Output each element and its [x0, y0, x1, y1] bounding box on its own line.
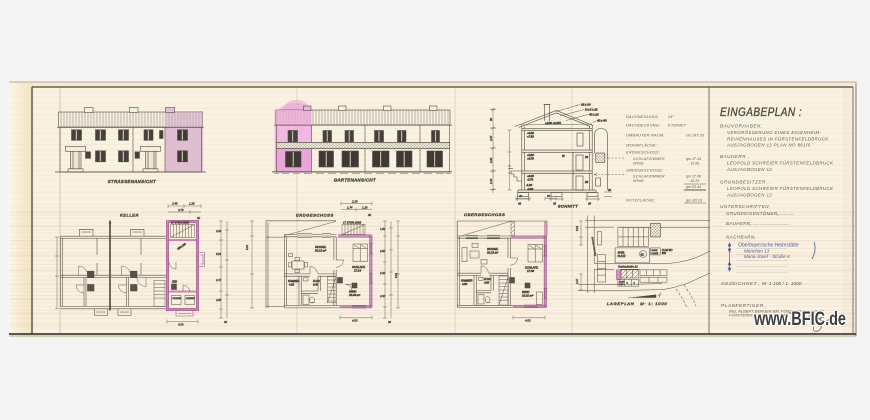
svg-text:GARTENANSICHT: GARTENANSICHT	[334, 178, 376, 183]
svg-text:B2: B2	[641, 253, 645, 257]
svg-text:FLUR: FLUR	[313, 279, 320, 283]
svg-text:LAGEPLAN M· 1: 1000: LAGEPLAN M· 1: 1000	[607, 301, 667, 306]
svg-text:qm 17.14: qm 17.14	[686, 157, 701, 161]
svg-text:..............................: ....................................	[748, 221, 790, 226]
svg-text:36: 36	[518, 202, 521, 206]
svg-text:40 x 40: 40 x 40	[597, 119, 607, 123]
svg-text:SCHLAFZIMMER: SCHLAFZIMMER	[633, 175, 665, 179]
svg-text:KAMMER: KAMMER	[288, 279, 300, 283]
svg-text:4.00: 4.00	[525, 319, 531, 323]
svg-text:16.31 m²: 16.31 m²	[522, 294, 534, 298]
svg-text:GRUNDBESITZER ‚: GRUNDBESITZER ‚	[720, 180, 769, 185]
svg-text:40 x 12: 40 x 12	[589, 113, 599, 117]
svg-text:VERGRÖSSERUNG EINES EIGENHEIM-: VERGRÖSSERUNG EINES EIGENHEIM-	[727, 130, 822, 135]
svg-text:2.20: 2.20	[379, 271, 386, 275]
svg-text:+5.20: +5.20	[527, 153, 534, 157]
svg-text:Gartenstraße 12: Gartenstraße 12	[618, 265, 638, 269]
svg-text:1.26: 1.26	[362, 206, 368, 210]
svg-text:UNTERSCHRIFTEN‚: UNTERSCHRIFTEN‚	[720, 204, 771, 209]
svg-text:DACHNEIGUNG:: DACHNEIGUNG:	[626, 115, 659, 119]
svg-text:+7.18: +7.18	[527, 135, 534, 139]
svg-text:4.18: 4.18	[289, 283, 295, 287]
svg-text:ÖLTANK: ÖLTANK	[186, 297, 195, 300]
svg-text:861: 861	[662, 252, 667, 255]
svg-text:KELLER: KELLER	[120, 213, 139, 218]
svg-text:qm 17.08: qm 17.08	[686, 175, 701, 179]
svg-text:NUTZFLÄCHE:: NUTZFLÄCHE:	[626, 199, 655, 203]
svg-text:6.40: 6.40	[313, 283, 319, 287]
svg-text:ERDGESCHOSS:: ERDGESCHOSS:	[626, 151, 660, 155]
svg-text:..............................: ........................................…	[736, 269, 787, 274]
svg-text:8.01: 8.01	[575, 225, 579, 231]
svg-text:AUSJAGBOGEN 12: AUSJAGBOGEN 12	[726, 167, 772, 172]
svg-text:SCHLAFZIMMER: SCHLAFZIMMER	[633, 157, 665, 161]
svg-text:cm 247.33: cm 247.33	[686, 134, 705, 138]
svg-text:LEOPOLD SCHREIER FÜRSTENFELDB: LEOPOLD SCHREIER FÜRSTENFELDBRUCK	[727, 161, 834, 166]
svg-text:8.01: 8.01	[394, 272, 398, 278]
svg-text:4.00: 4.00	[352, 319, 358, 323]
svg-text:17.14: 17.14	[354, 269, 361, 273]
svg-text:2.60: 2.60	[379, 249, 386, 253]
svg-text:www.BFIC.de: www.BFIC.de	[753, 309, 846, 330]
svg-text:+0.00: +0.00	[527, 174, 534, 178]
svg-text:1.50: 1.50	[380, 227, 386, 231]
svg-text:4.00: 4.00	[178, 323, 184, 327]
svg-text:· 16.31: · 16.31	[688, 179, 699, 183]
svg-text:AUSJAGBOGEN 12: AUSJAGBOGEN 12	[726, 192, 772, 197]
svg-text:-1.90: -1.90	[526, 183, 533, 187]
svg-text:BAUVORHABEN‚: BAUVORHABEN‚	[720, 124, 762, 129]
svg-text:LEOPOLD SCHREIER FÜRSTENFELDB: LEOPOLD SCHREIER FÜRSTENFELDBRUCK	[727, 186, 834, 191]
svg-text:4.05: 4.05	[484, 281, 490, 285]
svg-text:+2.60 +2.675: +2.60 +2.675	[545, 121, 561, 125]
svg-text:GEZEICHNET ‚: GEZEICHNET ‚	[721, 281, 760, 287]
svg-text:26: 26	[584, 180, 588, 184]
svg-text:WOHNFLÄCHE:: WOHNFLÄCHE:	[626, 144, 657, 148]
svg-text:OBERGESCHOSS: OBERGESCHOSS	[464, 212, 505, 217]
svg-text:..............................: ........................................…	[736, 251, 787, 256]
svg-text:36: 36	[588, 202, 591, 206]
svg-text:REIHENHAUSES IN FÜRSTENFELDBRU: REIHENHAUSES IN FÜRSTENFELDBRUCK	[727, 136, 829, 141]
svg-text:-2.78: -2.78	[527, 178, 534, 182]
svg-text:PARK: PARK	[652, 249, 658, 252]
svg-text:4.08: 4.08	[462, 282, 468, 286]
svg-text:17 STGN 18/25: 17 STGN 18/25	[171, 221, 190, 225]
svg-text:8 x 8 x 12: 8 x 8 x 12	[585, 108, 598, 112]
svg-text:qm 53.44: qm 53.44	[686, 185, 701, 189]
svg-text:AUSJAGBOGEN 12 PLAN NO 861/: AUSJAGBOGEN 12 PLAN NO 861/6	[726, 143, 811, 148]
svg-text:2.63: 2.63	[489, 157, 493, 164]
svg-text:BAUHERR ‚: BAUHERR ‚	[720, 154, 749, 159]
svg-text:FLUR: FLUR	[484, 277, 491, 281]
svg-text:1.74: 1.74	[347, 206, 353, 210]
svg-text:17.08: 17.08	[527, 269, 534, 273]
svg-text:1.26: 1.26	[189, 202, 195, 206]
svg-text:............................: ............................	[762, 211, 795, 216]
svg-text:2.67: 2.67	[489, 135, 493, 142]
svg-text:17 STGN 18/25: 17 STGN 18/25	[343, 221, 362, 225]
svg-text:WIND: WIND	[633, 179, 644, 183]
svg-text:FLUR: FLUR	[619, 281, 625, 283]
svg-text:HZG: HZG	[172, 281, 177, 284]
svg-text:+8.20: +8.20	[527, 131, 534, 135]
svg-text:26: 26	[584, 155, 588, 159]
svg-text:30: 30	[197, 216, 201, 220]
svg-text:KAMMER: KAMMER	[461, 279, 473, 283]
svg-text:PLATZ: PLATZ	[618, 254, 626, 258]
svg-text:DACHDECKUNG:: DACHDECKUNG:	[626, 124, 660, 128]
svg-text:2.44: 2.44	[489, 178, 493, 185]
svg-text:2.47: 2.47	[215, 278, 222, 282]
svg-text:EINGABEPLAN :: EINGABEPLAN :	[720, 105, 802, 119]
svg-text:24°: 24°	[667, 115, 674, 119]
svg-text:ÖLTANK: ÖLTANK	[173, 297, 182, 300]
svg-text:PLATZ: PLATZ	[652, 252, 659, 255]
svg-text:..............................: ........................................…	[736, 263, 787, 268]
svg-text:STRASSENANSICHT: STRASSENANSICHT	[108, 179, 156, 184]
svg-text:2.47: 2.47	[575, 278, 579, 285]
svg-text:ERDGESCHOSS: ERDGESCHOSS	[296, 213, 334, 218]
svg-text:2.26: 2.26	[215, 229, 222, 233]
svg-text:ETERNIT: ETERNIT	[668, 124, 687, 128]
svg-text:5.01: 5.01	[216, 252, 222, 256]
svg-text:18 x 14: 18 x 14	[581, 103, 591, 107]
svg-text:30: 30	[368, 213, 372, 217]
svg-text:· 15.66: · 15.66	[688, 162, 699, 166]
svg-text:UMBAUTER RAUM:: UMBAUTER RAUM:	[626, 134, 665, 138]
svg-text:+2.78: +2.78	[527, 157, 534, 161]
svg-text:2.55: 2.55	[215, 298, 222, 302]
svg-text:3.76: 3.76	[178, 208, 184, 212]
svg-text:OBERGESCHOSS:: OBERGESCHOSS:	[626, 169, 663, 173]
svg-text:2.30: 2.30	[351, 200, 358, 204]
svg-text:-0.90: -0.90	[527, 187, 534, 191]
svg-text:20.12 m²: 20.12 m²	[486, 251, 499, 255]
svg-text:30: 30	[608, 188, 611, 192]
svg-text:2.30: 2.30	[379, 294, 386, 298]
svg-text:qm 83.16: qm 83.16	[686, 199, 703, 203]
svg-text:20.12 m²: 20.12 m²	[314, 249, 327, 253]
svg-text:NACHBARN‚: NACHBARN‚	[726, 235, 756, 240]
svg-text:..............................: ........................................…	[736, 257, 787, 262]
svg-text:8.01: 8.01	[245, 244, 249, 250]
svg-text:SCHNITT: SCHNITT	[558, 204, 578, 209]
svg-text:36: 36	[553, 202, 556, 206]
svg-text:2.45: 2.45	[171, 202, 178, 206]
svg-text:15.66 m²: 15.66 m²	[349, 293, 361, 297]
svg-text:WIND: WIND	[633, 162, 644, 166]
svg-text:..............................: ........................................…	[736, 245, 787, 250]
svg-text:80: 80	[489, 118, 493, 121]
svg-text:M· 1·100 / 1· 1000: M· 1·100 / 1· 1000	[762, 281, 802, 287]
